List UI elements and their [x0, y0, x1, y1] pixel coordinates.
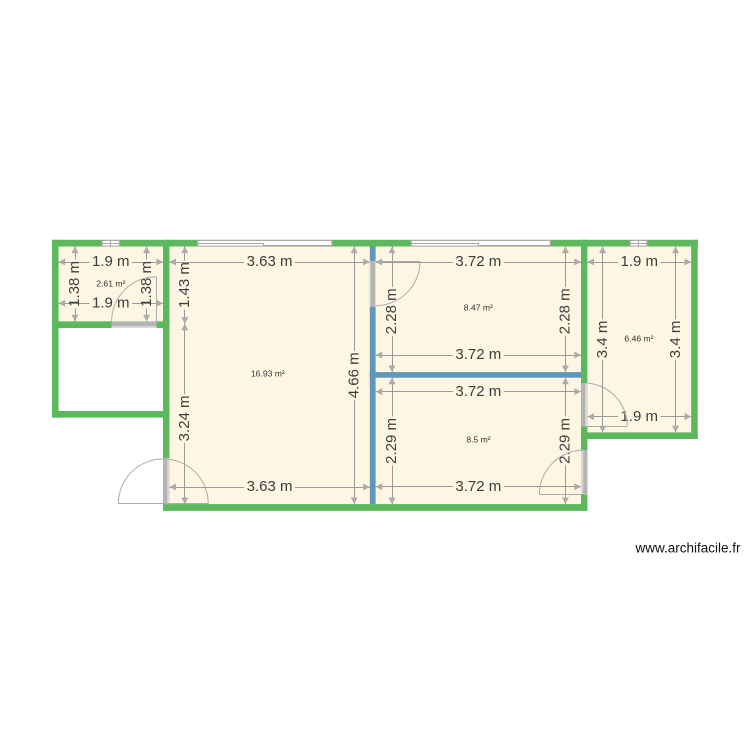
- svg-text:3.72 m: 3.72 m: [455, 478, 501, 495]
- svg-text:1.38 m: 1.38 m: [138, 261, 155, 307]
- svg-text:1.9 m: 1.9 m: [621, 253, 659, 270]
- svg-text:6.46 m²: 6.46 m²: [624, 334, 653, 344]
- svg-text:1.38 m: 1.38 m: [66, 261, 83, 307]
- svg-text:3.72 m: 3.72 m: [455, 253, 501, 270]
- svg-text:3.72 m: 3.72 m: [455, 346, 501, 363]
- svg-text:3.4 m: 3.4 m: [667, 321, 684, 359]
- svg-text:www.archifacile.fr: www.archifacile.fr: [634, 541, 741, 556]
- svg-text:3.4 m: 3.4 m: [594, 321, 611, 359]
- svg-text:2.61 m²: 2.61 m²: [96, 278, 125, 288]
- svg-text:8.47 m²: 8.47 m²: [464, 302, 493, 312]
- svg-text:4.66 m: 4.66 m: [345, 352, 362, 398]
- svg-text:2.28 m: 2.28 m: [383, 288, 400, 334]
- svg-text:3.63 m: 3.63 m: [247, 478, 293, 495]
- svg-text:3.72 m: 3.72 m: [455, 383, 501, 400]
- svg-text:16.93 m²: 16.93 m²: [251, 369, 285, 379]
- svg-text:3.24 m: 3.24 m: [176, 395, 193, 441]
- svg-text:8.5 m²: 8.5 m²: [466, 435, 490, 445]
- svg-text:3.63 m: 3.63 m: [247, 253, 293, 270]
- svg-text:2.29 m: 2.29 m: [383, 418, 400, 464]
- svg-text:2.28 m: 2.28 m: [557, 288, 574, 334]
- svg-text:1.9 m: 1.9 m: [92, 295, 130, 312]
- svg-text:1.9 m: 1.9 m: [92, 253, 130, 270]
- svg-text:1.43 m: 1.43 m: [176, 262, 193, 308]
